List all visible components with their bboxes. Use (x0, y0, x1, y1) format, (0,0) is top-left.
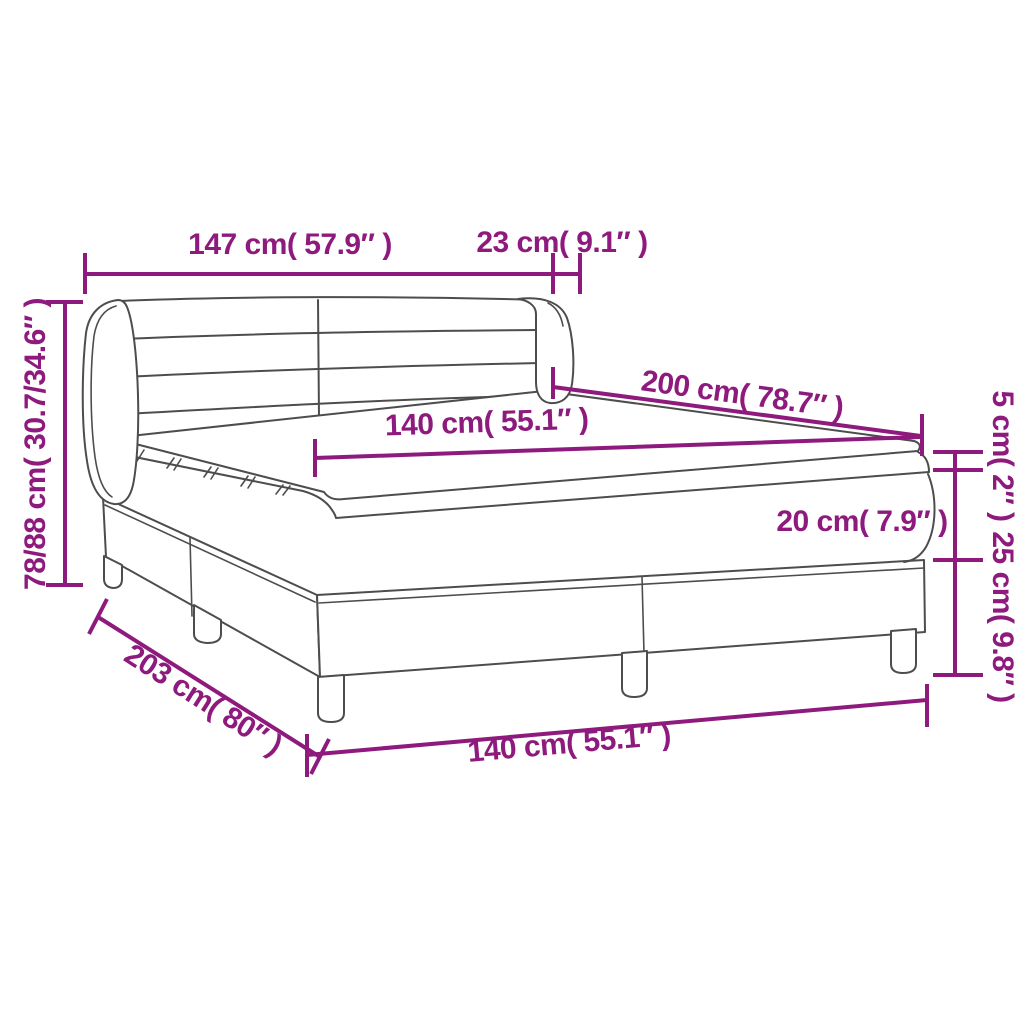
bed-leg (622, 651, 647, 697)
dim-overall-height: 78/88 cm( 30.7/34.6″ ) (19, 298, 83, 590)
headboard-center-seam (318, 300, 319, 418)
headboard-slat-line (123, 363, 540, 377)
dimension-label-mattress-thickness: 20 cm( 7.9″ ) (776, 505, 947, 538)
dim-headboard-width: 147 cm( 57.9″ ) 23 cm( 9.1″ ) (85, 226, 648, 294)
bed-dimension-diagram: 147 cm( 57.9″ ) 23 cm( 9.1″ ) 78/88 cm( … (0, 0, 1024, 1024)
dimension-label-overall-height: 78/88 cm( 30.7/34.6″ ) (19, 298, 52, 590)
bed-leg (891, 629, 916, 673)
dimension-annotations: 147 cm( 57.9″ ) 23 cm( 9.1″ ) 78/88 cm( … (19, 226, 1019, 777)
dimension-label-base-height: 25 cm( 9.8″ ) (986, 531, 1019, 702)
dimension-line (933, 452, 983, 675)
dimension-label-headboard-width: 147 cm( 57.9″ ) (188, 228, 392, 261)
dimension-label-headboard-side-depth: 23 cm( 9.1″ ) (476, 226, 647, 259)
headboard-top-edge (118, 297, 540, 301)
dimension-label-base-width: 140 cm( 55.1″ ) (466, 718, 672, 769)
dim-base-width: 140 cm( 55.1″ ) (307, 684, 927, 777)
bed-leg (318, 675, 344, 722)
headboard-slat-line (121, 330, 540, 339)
diagram-canvas: 147 cm( 57.9″ ) 23 cm( 9.1″ ) 78/88 cm( … (0, 0, 1024, 1024)
dimension-label-topper-thickness: 5 cm( 2″ ) (986, 390, 1019, 521)
dimension-label-base-length: 203 cm( 80″ ) (118, 638, 287, 762)
